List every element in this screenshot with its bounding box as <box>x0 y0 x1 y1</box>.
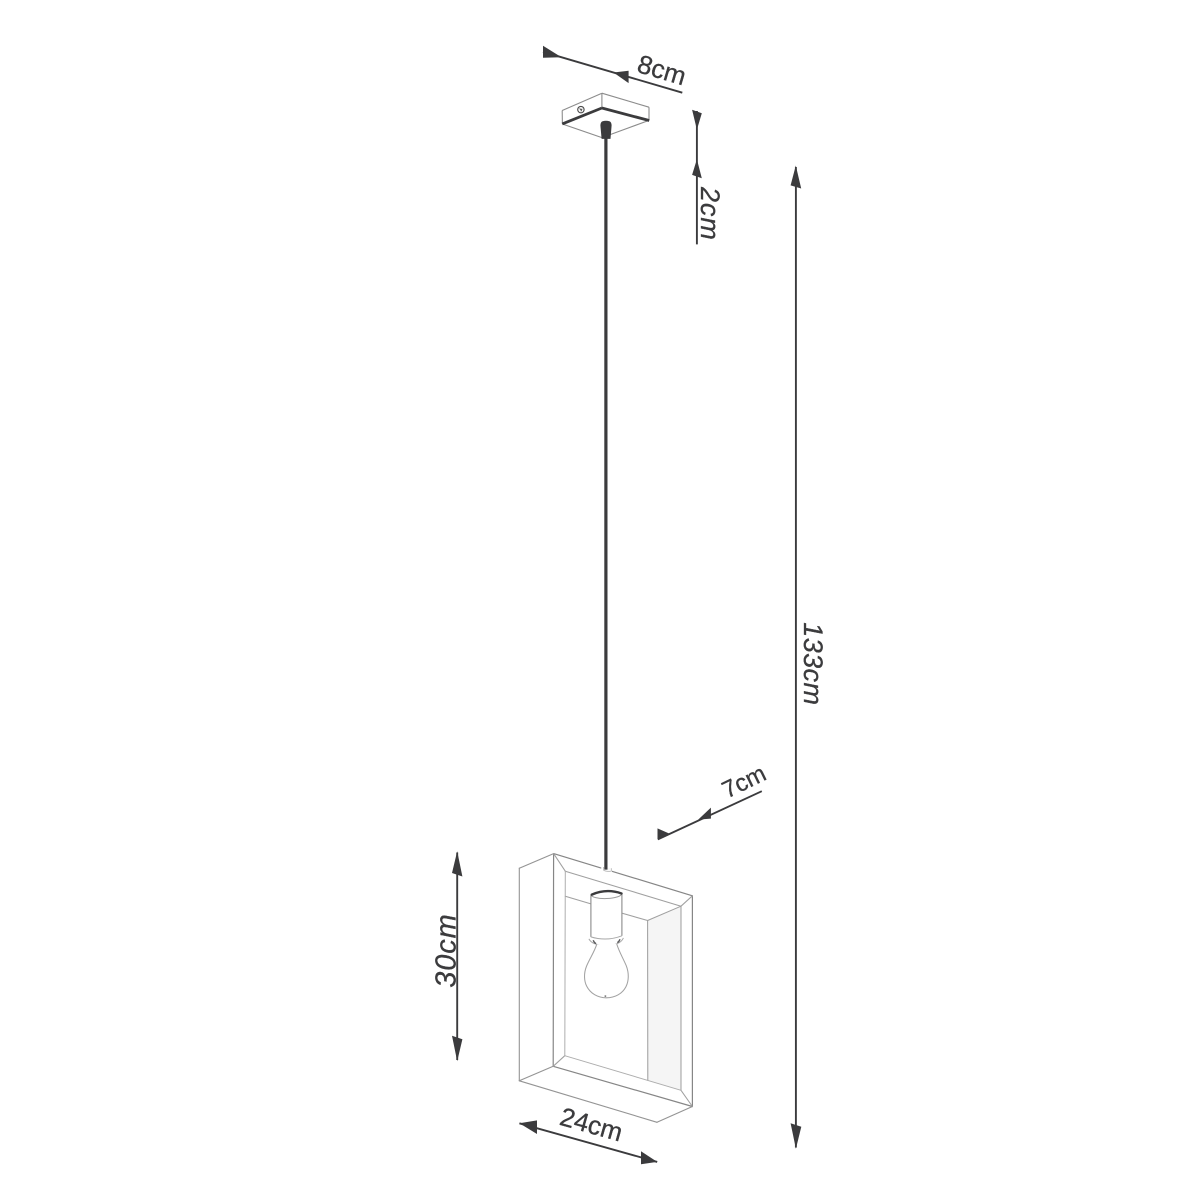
svg-text:30cm: 30cm <box>430 913 462 988</box>
svg-text:133cm: 133cm <box>798 622 828 705</box>
svg-text:2cm: 2cm <box>695 186 725 241</box>
